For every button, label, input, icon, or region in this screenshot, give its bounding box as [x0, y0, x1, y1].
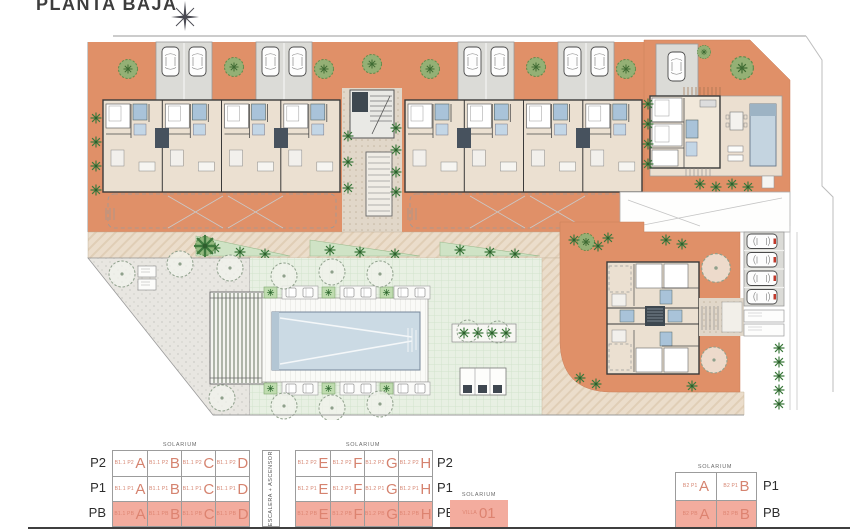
sun-lounger-pad [340, 382, 376, 395]
tree-icon [697, 45, 710, 58]
legend-cell: B1.2 P2E [296, 451, 330, 476]
sun-lounger-pad [394, 286, 430, 299]
unit-letter: C [204, 507, 215, 522]
unit-letter: C [203, 482, 214, 497]
tree-icon [319, 395, 345, 420]
floor-label: PB [89, 500, 106, 525]
tree-icon [701, 347, 727, 373]
communal-pool [272, 312, 420, 370]
unit-code: B1.2 P1 [365, 487, 384, 492]
unit-code: B1.1 P2 [115, 461, 134, 466]
unit-code: B1.2 P2 [298, 461, 317, 466]
solarium-label: SOLARIUM [675, 464, 755, 470]
unit-letter: H [421, 507, 432, 522]
unit-code: B1.2 P2 [400, 461, 419, 466]
stair-elevator-core [342, 42, 402, 232]
legend-row-p1: B2 P1A B2 P1B [676, 473, 756, 500]
floor-label: PB [763, 499, 793, 526]
legend-grid-b12: B1.2 P2E B1.2 P2F B1.2 P2G B1.2 P2H B1.2… [295, 450, 433, 527]
unit-code: B2 P1 [683, 484, 698, 489]
unit-code: B1.2 PB [399, 512, 419, 517]
legend-row-p1: B1.1 P1A B1.1 P1B B1.1 P1C B1.1 P1D [113, 476, 249, 501]
legend-cell: B1.1 P2A [113, 451, 147, 476]
tree-icon [217, 255, 243, 281]
unit-letter: F [353, 456, 362, 471]
unit-letter: B [170, 507, 180, 522]
unit-code: B1.2 P2 [365, 461, 384, 466]
floor-label: P2 [437, 450, 467, 475]
unit-code: B1.1 PB [149, 512, 169, 517]
unit-letter: E [319, 507, 329, 522]
unit-code: B1.1 P1 [183, 487, 202, 492]
unit-code: B2 PB [683, 512, 698, 517]
tree-icon [209, 385, 235, 411]
floor-label: P1 [763, 472, 793, 499]
legend-cell-villa: VILLA 01 [450, 500, 508, 527]
palm-icon [195, 236, 215, 256]
legend-cell: B1.2 P1F [330, 477, 364, 501]
unit-code: B1.1 PB [216, 512, 236, 517]
unit-letter: A [699, 479, 709, 494]
unit-letter: D [237, 456, 248, 471]
car-icon [747, 253, 777, 268]
unit-code: B1.1 PB [182, 512, 202, 517]
tree-icon [577, 233, 594, 250]
unit-code: B2 PB [723, 512, 738, 517]
legend-cell: B1.1 P1C [181, 477, 215, 501]
unit-code: B1.2 PB [332, 512, 352, 517]
legend-cell: B1.1 PBC [181, 502, 215, 526]
floorplan-sheet: PLANTA BAJA [0, 0, 850, 530]
unit-letter: A [135, 456, 145, 471]
legend-cell: B1.1 P1B [147, 477, 181, 501]
unit-letter: G [386, 456, 398, 471]
unit-letter: D [237, 482, 248, 497]
legend-cell: B1.1 P1A [113, 477, 147, 501]
tree-icon [702, 254, 731, 283]
unit-letter: C [203, 456, 214, 471]
unit-letter: B [170, 456, 180, 471]
legend-grid-b2: B2 P1A B2 P1B B2 PBA B2 PBB [675, 472, 757, 528]
unit-letter: H [420, 482, 431, 497]
legend-cell: B1.1 PBD [215, 502, 249, 526]
legend-cell: B1.1 PBA [113, 502, 147, 526]
floor-label: P2 [90, 450, 106, 475]
unit-code: B1.2 P1 [400, 487, 419, 492]
unit-code: B1.2 PB [297, 512, 317, 517]
unit-letter: G [386, 482, 398, 497]
unit-code: B1.1 P1 [115, 487, 134, 492]
legend-cell: B2 P1A [676, 473, 716, 500]
legend-cell: B2 PBA [676, 501, 716, 527]
tree-icon [271, 263, 297, 289]
legend-cell: B1.2 P1E [296, 477, 330, 501]
legend-cell: B1.2 P2H [398, 451, 432, 476]
villa-01 [643, 40, 790, 192]
unit-code: B1.1 P1 [217, 487, 236, 492]
unit-letter: E [318, 482, 328, 497]
legend-cell: B2 PBB [716, 501, 756, 527]
unit-code: B1.1 P2 [183, 461, 202, 466]
unit-letter: H [420, 456, 431, 471]
building-block-b12 [390, 42, 645, 232]
unit-letter: E [318, 456, 328, 471]
unit-code: B1.1 P2 [149, 461, 168, 466]
stairs-elevator-label-box: ESCALERA + ASCENSOR [262, 450, 280, 527]
legend-grid-b11: B1.1 P2A B1.1 P2B B1.1 P2C B1.1 P2D B1.1… [112, 450, 250, 527]
unit-code: B1.1 PB [114, 512, 134, 517]
unit-code: B2 P1 [723, 484, 738, 489]
legend-cell: B1.2 PBH [398, 502, 432, 526]
tree-icon [363, 55, 382, 74]
sun-lounger-pad [282, 382, 318, 395]
legend-cell: B1.2 P2G [364, 451, 398, 476]
unit-letter: D [238, 507, 249, 522]
legend-cell: B1.1 P2D [215, 451, 249, 476]
tree-icon [367, 391, 393, 417]
site-plan [0, 0, 850, 420]
legend-cell: B1.1 PBB [147, 502, 181, 526]
unit-code: VILLA [462, 511, 477, 516]
legend-cell: B1.2 P1H [398, 477, 432, 501]
unit-code: B1.2 P1 [333, 487, 352, 492]
legend-row-p2: B1.1 P2A B1.1 P2B B1.1 P2C B1.1 P2D [113, 451, 249, 476]
legend-cell: B1.1 P2C [181, 451, 215, 476]
ramp [366, 152, 392, 216]
building-block-b11 [88, 42, 343, 232]
unit-code: B1.1 P2 [217, 461, 236, 466]
legend-row-pb-highlighted: B2 PBA B2 PBB [676, 500, 756, 527]
stairs-elevator-label: ESCALERA + ASCENSOR [268, 451, 274, 526]
unit-code: B1.2 P1 [298, 487, 317, 492]
floor-labels-b11: P2 P1 PB [72, 450, 106, 525]
unit-letter: A [136, 507, 146, 522]
unit-code: B1.2 PB [365, 512, 385, 517]
tree-icon [319, 259, 345, 285]
car-icon [668, 52, 685, 81]
parking-b2 [744, 232, 784, 336]
solarium-label: SOLARIUM [295, 442, 431, 448]
legend-cell: B1.2 P2F [330, 451, 364, 476]
legend-cell: B1.2 P1G [364, 477, 398, 501]
legend-cell: B2 P1B [716, 473, 756, 500]
car-icon [747, 271, 777, 286]
legend-row-p2: B1.2 P2E B1.2 P2F B1.2 P2G B1.2 P2H [296, 451, 432, 476]
building-block-b2 [560, 222, 744, 392]
unit-letter: G [386, 507, 398, 522]
floor-label: P1 [90, 475, 106, 500]
unit-letter: F [354, 507, 363, 522]
unit-letter: B [740, 479, 750, 494]
unit-letter: F [353, 482, 362, 497]
legend-row-pb-highlighted: B1.1 PBA B1.1 PBB B1.1 PBC B1.1 PBD [113, 501, 249, 526]
villa-pool [750, 104, 776, 166]
unit-letter: B [740, 507, 750, 522]
legend-row-pb-highlighted: B1.2 PBE B1.2 PBF B1.2 PBG B1.2 PBH [296, 501, 432, 526]
legend-cell: B1.2 PBG [364, 502, 398, 526]
sun-lounger-pad [394, 382, 430, 395]
tree-icon [367, 261, 393, 287]
unit-letter: 01 [479, 506, 496, 521]
legend-row-p1: B1.2 P1E B1.2 P1F B1.2 P1G B1.2 P1H [296, 476, 432, 501]
solarium-label: SOLARIUM [450, 492, 508, 498]
tree-icon [167, 251, 193, 277]
car-icon [747, 234, 777, 249]
unit-code: B1.1 P1 [149, 487, 168, 492]
showers [460, 368, 506, 395]
tree-icon [731, 57, 754, 80]
access-ramp [620, 192, 790, 232]
legend-cell: B1.1 P1D [215, 477, 249, 501]
unit-letter: A [135, 482, 145, 497]
legend-cell: B1.2 PBE [296, 502, 330, 526]
sun-lounger-pad [340, 286, 376, 299]
tree-icon [109, 261, 135, 287]
legend-cell: B1.2 PBF [330, 502, 364, 526]
elevator-shaft [352, 92, 368, 112]
unit-code: B1.2 P2 [333, 461, 352, 466]
car-icon [747, 290, 777, 305]
floor-labels-b2: P1 PB [763, 472, 793, 526]
pergola [210, 292, 266, 384]
unit-letter: A [699, 507, 709, 522]
legend-cell: B1.1 P2B [147, 451, 181, 476]
unit-letter: B [170, 482, 180, 497]
ground-line [28, 527, 850, 529]
solarium-label: SOLARIUM [112, 442, 248, 448]
